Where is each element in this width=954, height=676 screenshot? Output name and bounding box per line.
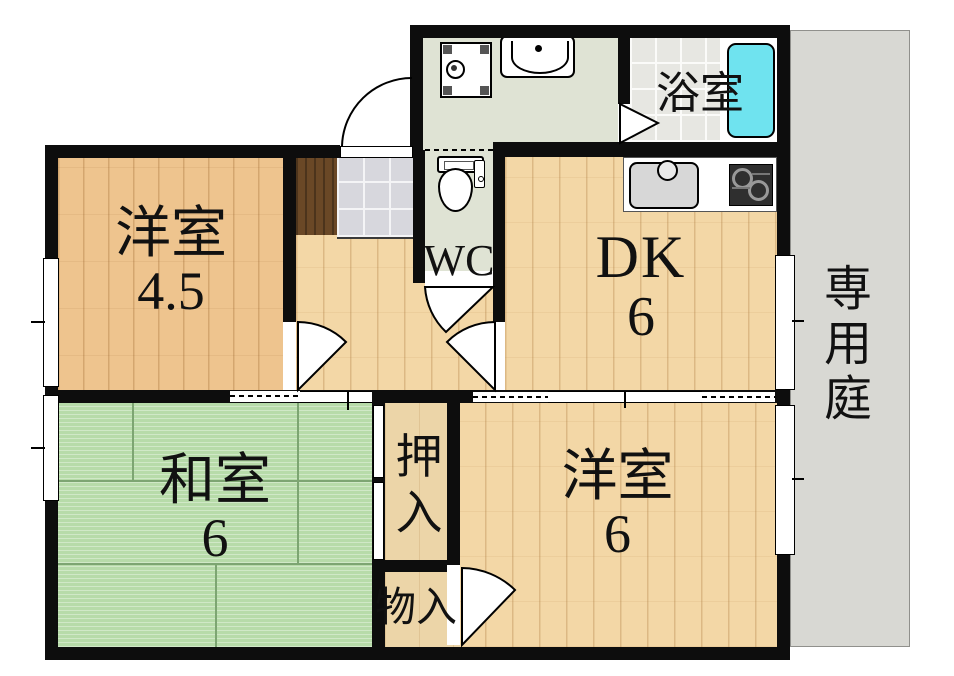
sliding-door-japanese (300, 391, 372, 403)
window-tick (792, 478, 804, 480)
shoe-cabinet (296, 155, 337, 235)
fusuma-door-lower (373, 482, 384, 560)
tatami-line (215, 563, 217, 647)
doorway-dk (493, 322, 505, 390)
washing-machine-pan-icon (440, 42, 492, 98)
washbasin-icon (500, 35, 575, 78)
wall-closet-divider (385, 560, 447, 572)
entrance-step-dashed (425, 149, 493, 151)
room-name: 洋室 (458, 448, 777, 506)
label-western-room-45: 洋室 4.5 (58, 205, 284, 319)
stove-icon (729, 164, 773, 206)
window-tick (31, 321, 45, 323)
garden-char: 用 (820, 317, 876, 372)
window-tick (31, 447, 45, 449)
window-west-2 (43, 395, 59, 501)
toilet-control-icon (474, 160, 485, 188)
label-dk: DK 6 (505, 226, 777, 347)
label-japanese-room: 和室 6 (58, 452, 372, 566)
entrance-door-arc (342, 78, 412, 146)
entrance-door-leaf (340, 146, 413, 158)
room-size: 6 (505, 288, 777, 346)
label-monoire: 物入 (370, 586, 462, 629)
label-western-room-6: 洋室 6 (458, 448, 777, 562)
dashed-line (230, 395, 300, 397)
floor-entrance-tiles (337, 155, 413, 239)
kitchen-sink-icon (629, 162, 699, 209)
fusuma-door-upper (373, 405, 384, 478)
wall-top-utility (410, 25, 790, 38)
room-name: 和室 (58, 452, 372, 510)
label-oshiire: 押 入 (391, 430, 447, 542)
room-name: 洋室 (58, 205, 284, 263)
room-size: 6 (458, 506, 777, 562)
room-name: DK (505, 226, 777, 288)
garden-char: 庭 (820, 372, 876, 427)
slide-tick (347, 391, 349, 410)
window-east-dk (775, 255, 795, 390)
label-private-garden: 専 用 庭 (820, 262, 876, 427)
garden-char: 専 (820, 262, 876, 317)
wall-dk-top (493, 142, 777, 157)
window-tick (792, 320, 804, 322)
window-west-1 (43, 258, 59, 387)
oshiire-char: 入 (391, 486, 447, 542)
floor-plan: 洋室 4.5 DK 6 和室 6 洋室 6 浴室 WC 専 用 庭 押 入 物入 (0, 0, 954, 676)
label-wc: WC (413, 238, 505, 284)
wall-bath-divider (618, 38, 630, 104)
dashed-line (702, 396, 775, 398)
room-size: 4.5 (58, 263, 284, 319)
wall-outer-bottom (45, 647, 790, 660)
slide-tick (624, 391, 626, 408)
wall-western45-right (283, 155, 296, 322)
doorway-western45 (283, 322, 296, 390)
label-bathroom: 浴室 (630, 71, 770, 117)
dashed-line (473, 396, 548, 398)
room-size: 6 (58, 510, 372, 566)
oshiire-char: 押 (391, 430, 447, 486)
window-east-western6 (775, 405, 795, 555)
wall-utility-left (410, 25, 423, 158)
